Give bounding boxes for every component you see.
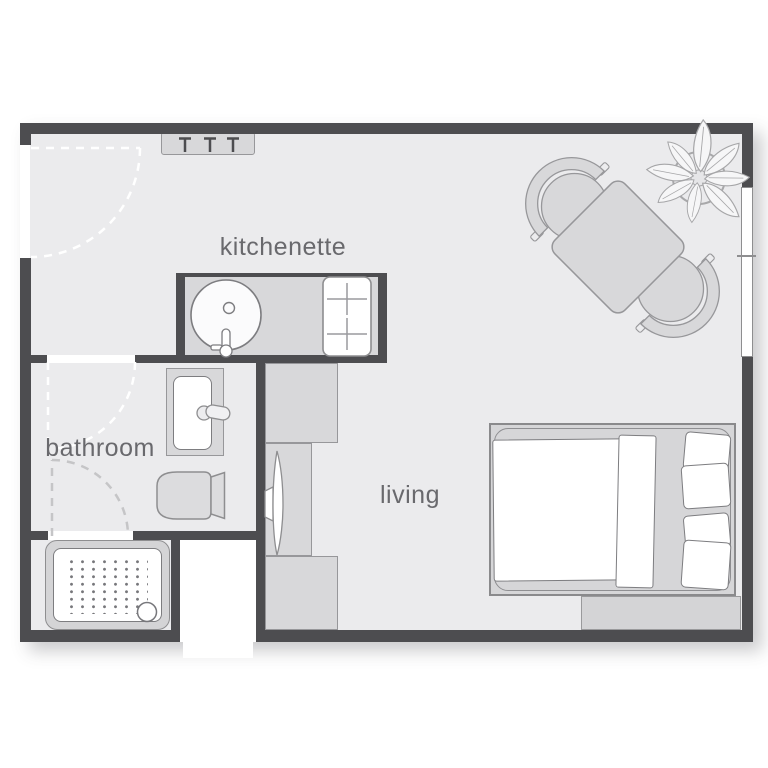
duvet xyxy=(492,438,623,581)
wall-right-upper xyxy=(742,123,753,187)
wall-shower-right xyxy=(171,531,180,642)
wash-basin xyxy=(173,376,212,450)
room-label-living: living xyxy=(350,481,470,510)
counter-right-edge xyxy=(378,273,387,363)
duvet-fold xyxy=(615,435,656,589)
wall-top xyxy=(20,123,753,134)
shower-texture xyxy=(64,556,148,614)
storage-unit xyxy=(265,556,338,630)
window-mullion xyxy=(737,255,756,257)
room-label-kitchenette: kitchenette xyxy=(208,233,358,262)
pillow xyxy=(680,539,731,590)
floor-plan: kitchenette bathroom living xyxy=(0,0,768,768)
wall-shower-top-a xyxy=(20,531,48,540)
wall-left-upper xyxy=(20,123,31,145)
counter-left-edge xyxy=(176,273,185,363)
pillow xyxy=(681,462,732,509)
room-label-bathroom: bathroom xyxy=(40,434,160,463)
tv-unit xyxy=(265,443,312,556)
wardrobe-unit xyxy=(265,363,338,443)
wall-bathroom-bottom xyxy=(180,531,256,540)
wall-left-lower xyxy=(20,258,31,642)
building-notch xyxy=(180,540,256,642)
coat-rack xyxy=(161,132,255,155)
storage-bench xyxy=(581,596,741,630)
wall-bathroom-top-a xyxy=(20,355,47,363)
wall-bathroom-right xyxy=(256,355,265,642)
bathroom-doorway xyxy=(47,355,135,363)
counter-top-edge xyxy=(176,273,387,277)
kitchen-counter xyxy=(185,277,378,363)
wall-bottom-left xyxy=(20,630,180,642)
wall-right-lower xyxy=(742,357,753,642)
notch-opening xyxy=(183,642,253,658)
wall-bottom-right xyxy=(256,630,753,642)
window xyxy=(741,187,753,357)
shower-doorway xyxy=(48,531,133,540)
